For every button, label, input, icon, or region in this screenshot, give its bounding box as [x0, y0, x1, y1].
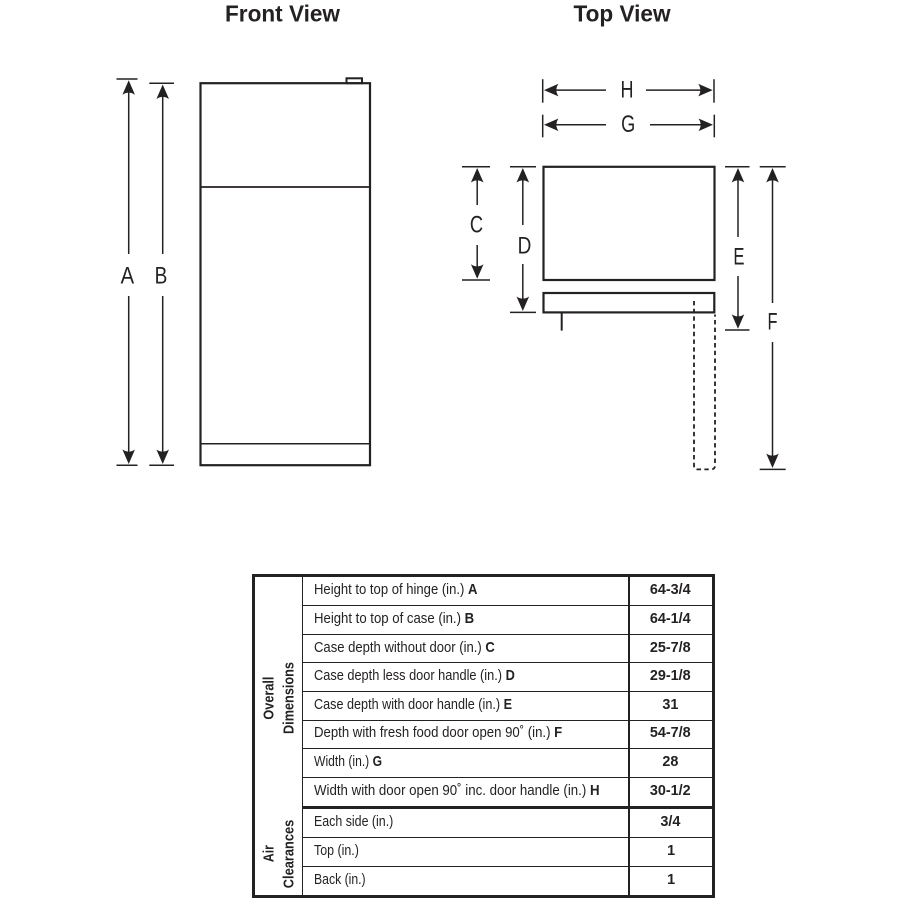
- svg-text:Front View: Front View: [225, 1, 340, 27]
- svg-text:Top View: Top View: [574, 1, 671, 27]
- svg-text:A: A: [121, 263, 135, 290]
- svg-text:G: G: [621, 111, 635, 138]
- svg-text:B: B: [155, 263, 168, 290]
- svg-text:C: C: [470, 211, 483, 238]
- svg-text:D: D: [518, 232, 532, 259]
- svg-text:H: H: [621, 77, 634, 104]
- svg-text:F: F: [768, 309, 778, 336]
- svg-text:E: E: [733, 243, 744, 270]
